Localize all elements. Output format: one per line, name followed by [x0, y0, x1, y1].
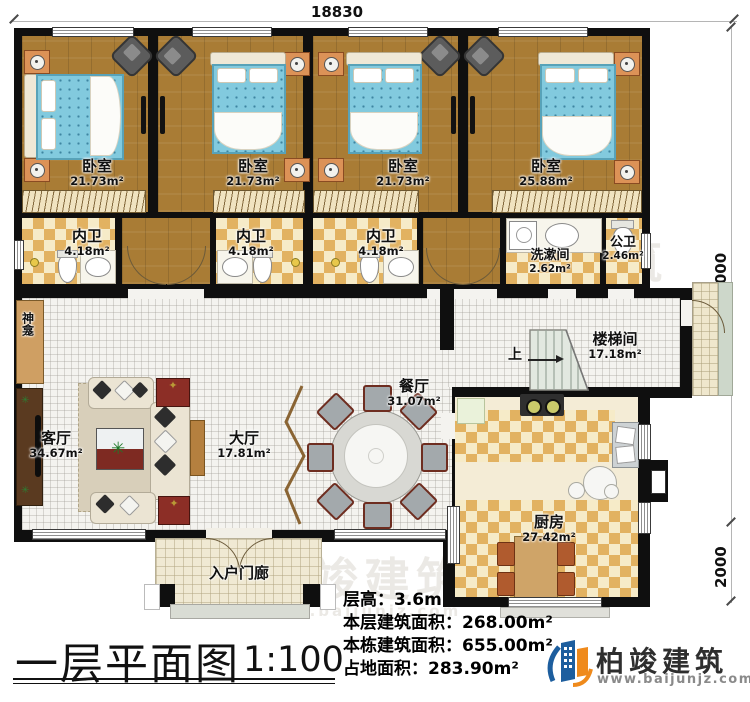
window — [32, 529, 146, 540]
plant-icon: ✳ — [111, 439, 125, 459]
side-table: ✦ — [158, 496, 190, 525]
dim-right-line — [731, 27, 732, 523]
nightstand — [284, 52, 310, 76]
dining-chair — [421, 443, 448, 472]
floor-drain — [30, 258, 39, 267]
window — [334, 529, 446, 540]
stat-floor-height: 层高：3.6m — [343, 585, 442, 610]
stat-floor-area: 本层建筑面积：268.00m² — [343, 608, 553, 633]
kitchen-chair — [557, 542, 575, 566]
tv — [141, 96, 146, 134]
sink — [388, 257, 414, 277]
bedroom3-label: 卧室21.73m² — [368, 158, 438, 188]
bed-blanket — [350, 112, 418, 150]
stove — [520, 394, 564, 416]
bed-pillow — [41, 80, 56, 112]
tv — [451, 96, 456, 134]
window — [14, 240, 24, 270]
wall-stub — [440, 288, 454, 350]
kitchen-chair — [497, 572, 515, 596]
brand-logo-icon — [543, 635, 593, 690]
bed-pillow — [41, 118, 56, 150]
sink — [545, 223, 579, 248]
dining-label: 餐厅31.07m² — [382, 378, 446, 408]
ensuite2-label: 内卫4.18m² — [216, 228, 286, 258]
sink — [85, 257, 111, 277]
window — [192, 27, 272, 37]
window — [638, 424, 651, 460]
bed-pillow — [217, 68, 246, 83]
porch-step-side — [144, 584, 160, 610]
stair-arrow-head — [556, 355, 564, 363]
wardrobe — [213, 190, 305, 213]
window — [638, 502, 651, 534]
door-gap — [681, 300, 692, 326]
window — [498, 27, 588, 37]
wardrobe — [492, 190, 642, 213]
window — [52, 27, 134, 37]
sink — [222, 257, 248, 277]
bed-blanket — [542, 116, 612, 156]
nightstand — [614, 160, 640, 184]
plant-icon: ✳ — [21, 485, 29, 496]
fridge — [457, 398, 485, 424]
folding-screen — [282, 384, 308, 526]
floor-drain — [291, 258, 300, 267]
dim-tick — [9, 14, 19, 24]
bed-pillow — [353, 68, 382, 83]
bedroom1-label: 卧室21.73m² — [62, 158, 132, 188]
public-wc-label: 公卫2.46m² — [597, 236, 649, 262]
bed-blanket — [90, 76, 121, 156]
bowl — [568, 482, 585, 499]
side-terrace — [692, 282, 720, 396]
title-underline — [13, 678, 335, 684]
floor-drain — [331, 258, 340, 267]
stair-label: 楼梯间17.18m² — [582, 331, 648, 361]
kitchen-sink — [612, 422, 639, 468]
kitchen-table — [514, 536, 558, 600]
dim-right2-label: 2000 — [712, 542, 730, 588]
nightstand — [318, 158, 344, 182]
washing-machine — [509, 221, 537, 250]
kitchen-chair — [497, 542, 515, 566]
bed-pillow — [249, 68, 278, 83]
bed-pillow — [385, 68, 414, 83]
door-gap — [548, 289, 576, 299]
chimney — [644, 460, 668, 502]
nightstand — [614, 52, 640, 76]
tv — [470, 96, 475, 134]
bed-pillow — [578, 68, 608, 83]
nightstand — [318, 52, 344, 76]
bedroom4-label: 卧室25.88m² — [508, 158, 584, 188]
floorplan-canvas: 柏竣建筑www.baijunjz.com 柏竣建筑www.baijunjz.co… — [0, 0, 750, 702]
hall-label: 大厅17.81m² — [206, 430, 282, 460]
stair-arrow-line — [528, 359, 556, 361]
bed-pillow — [545, 68, 575, 83]
window — [348, 27, 428, 37]
ensuite1-label: 内卫4.18m² — [52, 228, 122, 258]
shrine-label: 神龛 — [20, 312, 33, 336]
terrace-edge — [718, 282, 733, 396]
bed-blanket — [214, 112, 282, 150]
kitchen-label: 厨房27.42m² — [516, 514, 582, 544]
coffee-table: ✳ — [96, 428, 144, 470]
tv — [160, 96, 165, 134]
door-gap — [128, 289, 204, 299]
dining-chair — [307, 443, 334, 472]
stat-footprint-area: 占地面积：283.90m² — [343, 654, 519, 679]
porch-label: 入户门廊 — [186, 565, 292, 582]
wardrobe — [22, 190, 146, 213]
door-gap — [608, 289, 634, 299]
plant-icon: ✳ — [21, 395, 29, 406]
dim-top-line — [13, 21, 737, 22]
washroom-label: 洗漱间2.62m² — [512, 249, 588, 275]
sideboard — [190, 420, 205, 476]
nightstand — [24, 158, 50, 182]
dining-chair — [363, 502, 392, 529]
door-gap — [427, 289, 497, 299]
bedroom2-label: 卧室21.73m² — [218, 158, 288, 188]
window — [447, 506, 460, 564]
living-label: 客厅34.67m² — [18, 430, 94, 460]
wardrobe — [313, 190, 419, 213]
sheet-scale: 1:100 — [243, 640, 344, 680]
bowl — [604, 484, 619, 499]
kitchen-chair — [557, 572, 575, 596]
porch-step-side — [320, 584, 336, 610]
nightstand — [24, 50, 50, 74]
porch-step — [170, 604, 310, 619]
brand-site: www.baijunjz.com — [597, 672, 750, 687]
stair-up-label: 上 — [508, 348, 522, 364]
side-table: ✦ — [156, 378, 190, 407]
dim-top-label: 18830 — [302, 3, 372, 21]
dim-right2-line — [731, 523, 732, 603]
stat-building-area: 本栋建筑面积：655.00m² — [343, 631, 553, 656]
ensuite3-label: 内卫4.18m² — [346, 228, 416, 258]
